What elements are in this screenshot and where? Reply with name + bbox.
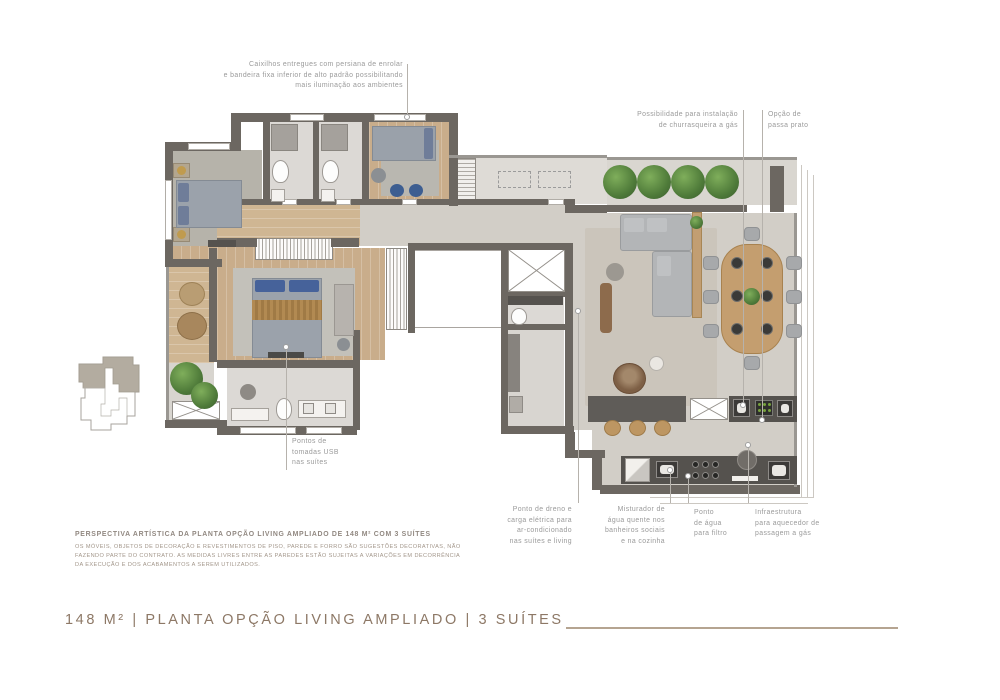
balcony-pouf: [177, 312, 207, 340]
burner: [692, 461, 699, 468]
lavabo-counter: [508, 296, 563, 305]
stool: [604, 420, 621, 436]
leader-filtro: [688, 478, 689, 503]
plate: [731, 257, 743, 269]
wall: [408, 243, 415, 333]
cushion: [624, 218, 644, 232]
leader-churrasqueira: [743, 110, 744, 405]
burner: [702, 461, 709, 468]
annotation-aquecedor: Infraestrutura para aquecedor de passage…: [755, 508, 843, 540]
lamp: [177, 166, 186, 175]
washer: [509, 396, 523, 413]
hedge-plant: [705, 165, 739, 199]
sink: [325, 403, 336, 414]
leader-endpoint: [685, 473, 691, 479]
wall: [565, 249, 573, 432]
door-gap: [402, 199, 417, 205]
annotation-usb: Pontos de tomadas USB nas suítes: [292, 437, 362, 469]
bench: [208, 240, 236, 247]
leader-usb: [286, 349, 287, 470]
closet-strip: [386, 248, 407, 330]
entry-door-gap: [548, 199, 564, 205]
dining-chair: [703, 290, 719, 304]
window: [165, 180, 172, 240]
plate: [731, 290, 743, 302]
building-key-plan: [73, 352, 143, 434]
leader-endpoint: [575, 308, 581, 314]
wall: [209, 248, 217, 362]
kitchen-island: [588, 396, 686, 422]
balcony-pouf: [179, 282, 205, 306]
hedge-plant: [637, 165, 671, 199]
dining-chair: [703, 256, 719, 270]
blue-pouf: [390, 184, 404, 197]
sink: [303, 403, 314, 414]
desk: [334, 284, 354, 336]
wall: [565, 205, 607, 213]
bathtub: [231, 408, 269, 421]
elevator-shaft: [508, 249, 565, 292]
bath-vanity: [321, 189, 335, 202]
pillow: [178, 206, 189, 225]
pillow: [424, 128, 433, 159]
wall: [353, 330, 360, 430]
leader-dreno: [578, 313, 579, 503]
bed-runner: [252, 300, 322, 320]
disclaimer-text: OS MÓVEIS, OBJETOS DE DECORAÇÃO E REVEST…: [75, 543, 461, 570]
burner: [712, 472, 719, 479]
water-heater: [737, 450, 757, 470]
lavabo-toilet: [511, 308, 527, 325]
pillow: [289, 280, 319, 292]
title-rule: [566, 627, 898, 629]
plan-title: 148 M² | PLANTA OPÇÃO LIVING AMPLIADO | …: [65, 612, 564, 628]
facade-line: [813, 175, 814, 497]
entry-bench-outline: [498, 171, 531, 188]
window: [240, 427, 296, 434]
stool: [240, 384, 256, 400]
dining-chair: [703, 324, 719, 338]
wall: [501, 324, 567, 330]
dining-chair: [786, 290, 802, 304]
facade-line: [807, 170, 808, 497]
pillow: [178, 183, 189, 202]
toilet: [322, 160, 339, 183]
wall: [449, 113, 458, 206]
dining-chair: [744, 356, 760, 370]
service-counter: [508, 334, 520, 392]
annotation-churrasqueira: Possibilidade para instalação de churras…: [590, 110, 738, 131]
annotation-passa-prato: Opção de passa prato: [768, 110, 838, 131]
wall: [501, 426, 574, 434]
optional-room-floor: [414, 250, 502, 328]
wall: [165, 420, 227, 428]
hedge-rail: [607, 157, 797, 160]
barbecue-grill: [755, 400, 773, 416]
table-centerpiece: [743, 288, 760, 305]
leader-aquecedor: [748, 447, 749, 503]
annotation-caixilhos: Caixilhos entregues com persiana de enro…: [155, 60, 403, 92]
hedge-plant: [671, 165, 705, 199]
hedge-plant: [603, 165, 637, 199]
foyer-floor: [360, 204, 572, 246]
stool: [629, 420, 646, 436]
counter-label: [732, 476, 758, 481]
appliance: [777, 400, 793, 417]
leader-passa-prato: [762, 110, 763, 420]
wall: [565, 432, 575, 458]
leader-endpoint: [740, 402, 746, 408]
appliance: [768, 461, 790, 480]
lamp: [177, 230, 186, 239]
facade-line: [660, 503, 808, 504]
floor-plan: [0, 0, 1000, 700]
dining-chair: [744, 227, 760, 241]
wall: [607, 205, 747, 212]
entry-terrace-floor: [455, 158, 607, 204]
entry-bench-outline-2: [538, 171, 571, 188]
console-plant: [690, 216, 703, 229]
burner: [712, 461, 719, 468]
dining-chair: [786, 256, 802, 270]
leader-endpoint: [667, 467, 673, 473]
living-east-rail: [794, 213, 797, 487]
leader-misturador: [670, 472, 671, 503]
wall: [331, 238, 359, 247]
toilet: [276, 398, 292, 420]
wall: [501, 249, 508, 432]
shower: [321, 124, 348, 151]
shower: [271, 124, 298, 151]
stool: [654, 420, 671, 436]
toilet: [272, 160, 289, 183]
leader-endpoint: [745, 442, 751, 448]
leader-endpoint: [759, 417, 765, 423]
ball-pouf: [606, 263, 624, 281]
desk-stool: [337, 338, 350, 351]
wardrobe-strip: [255, 238, 333, 260]
armchair: [613, 363, 646, 394]
side-table: [649, 356, 664, 371]
balcony-rail: [166, 267, 169, 420]
wall: [600, 485, 800, 494]
bath-vanity: [271, 189, 285, 202]
wall: [362, 122, 369, 204]
plate: [731, 323, 743, 335]
window: [290, 114, 324, 121]
terrace-rail: [449, 155, 607, 158]
bench-chaise: [600, 283, 612, 333]
wall: [217, 360, 359, 368]
leader-caixilhos: [407, 64, 408, 116]
dining-chair: [786, 324, 802, 338]
cushion: [657, 256, 671, 276]
wall: [263, 122, 270, 204]
annotation-filtro: Ponto de água para filtro: [694, 508, 744, 540]
wall: [408, 243, 573, 250]
desk-chair: [371, 168, 386, 183]
stairs: [456, 158, 476, 204]
balcony-plant: [191, 382, 218, 409]
burner: [702, 472, 709, 479]
leader-endpoint: [283, 344, 289, 350]
wall-stub: [770, 166, 784, 212]
pillow: [255, 280, 285, 292]
kitchen-shaft: [690, 398, 728, 420]
perspective-note-title: PERSPECTIVA ARTÍSTICA DA PLANTA OPÇÃO LI…: [75, 531, 431, 538]
window: [188, 143, 230, 150]
annotation-misturador: Misturador de água quente nos banheiros …: [590, 505, 665, 548]
floor-plan-page: Caixilhos entregues com persiana de enro…: [0, 0, 1000, 700]
door-gap: [336, 199, 351, 205]
leader-endpoint: [404, 114, 410, 120]
window: [306, 427, 342, 434]
window: [374, 114, 426, 121]
burner: [692, 472, 699, 479]
facade-line: [650, 497, 814, 498]
annotation-dreno: Ponto de dreno e carga elétrica para ar-…: [495, 505, 572, 548]
fridge: [625, 458, 650, 482]
cushion: [647, 218, 667, 232]
wall: [313, 122, 319, 204]
blue-pouf: [409, 184, 423, 197]
